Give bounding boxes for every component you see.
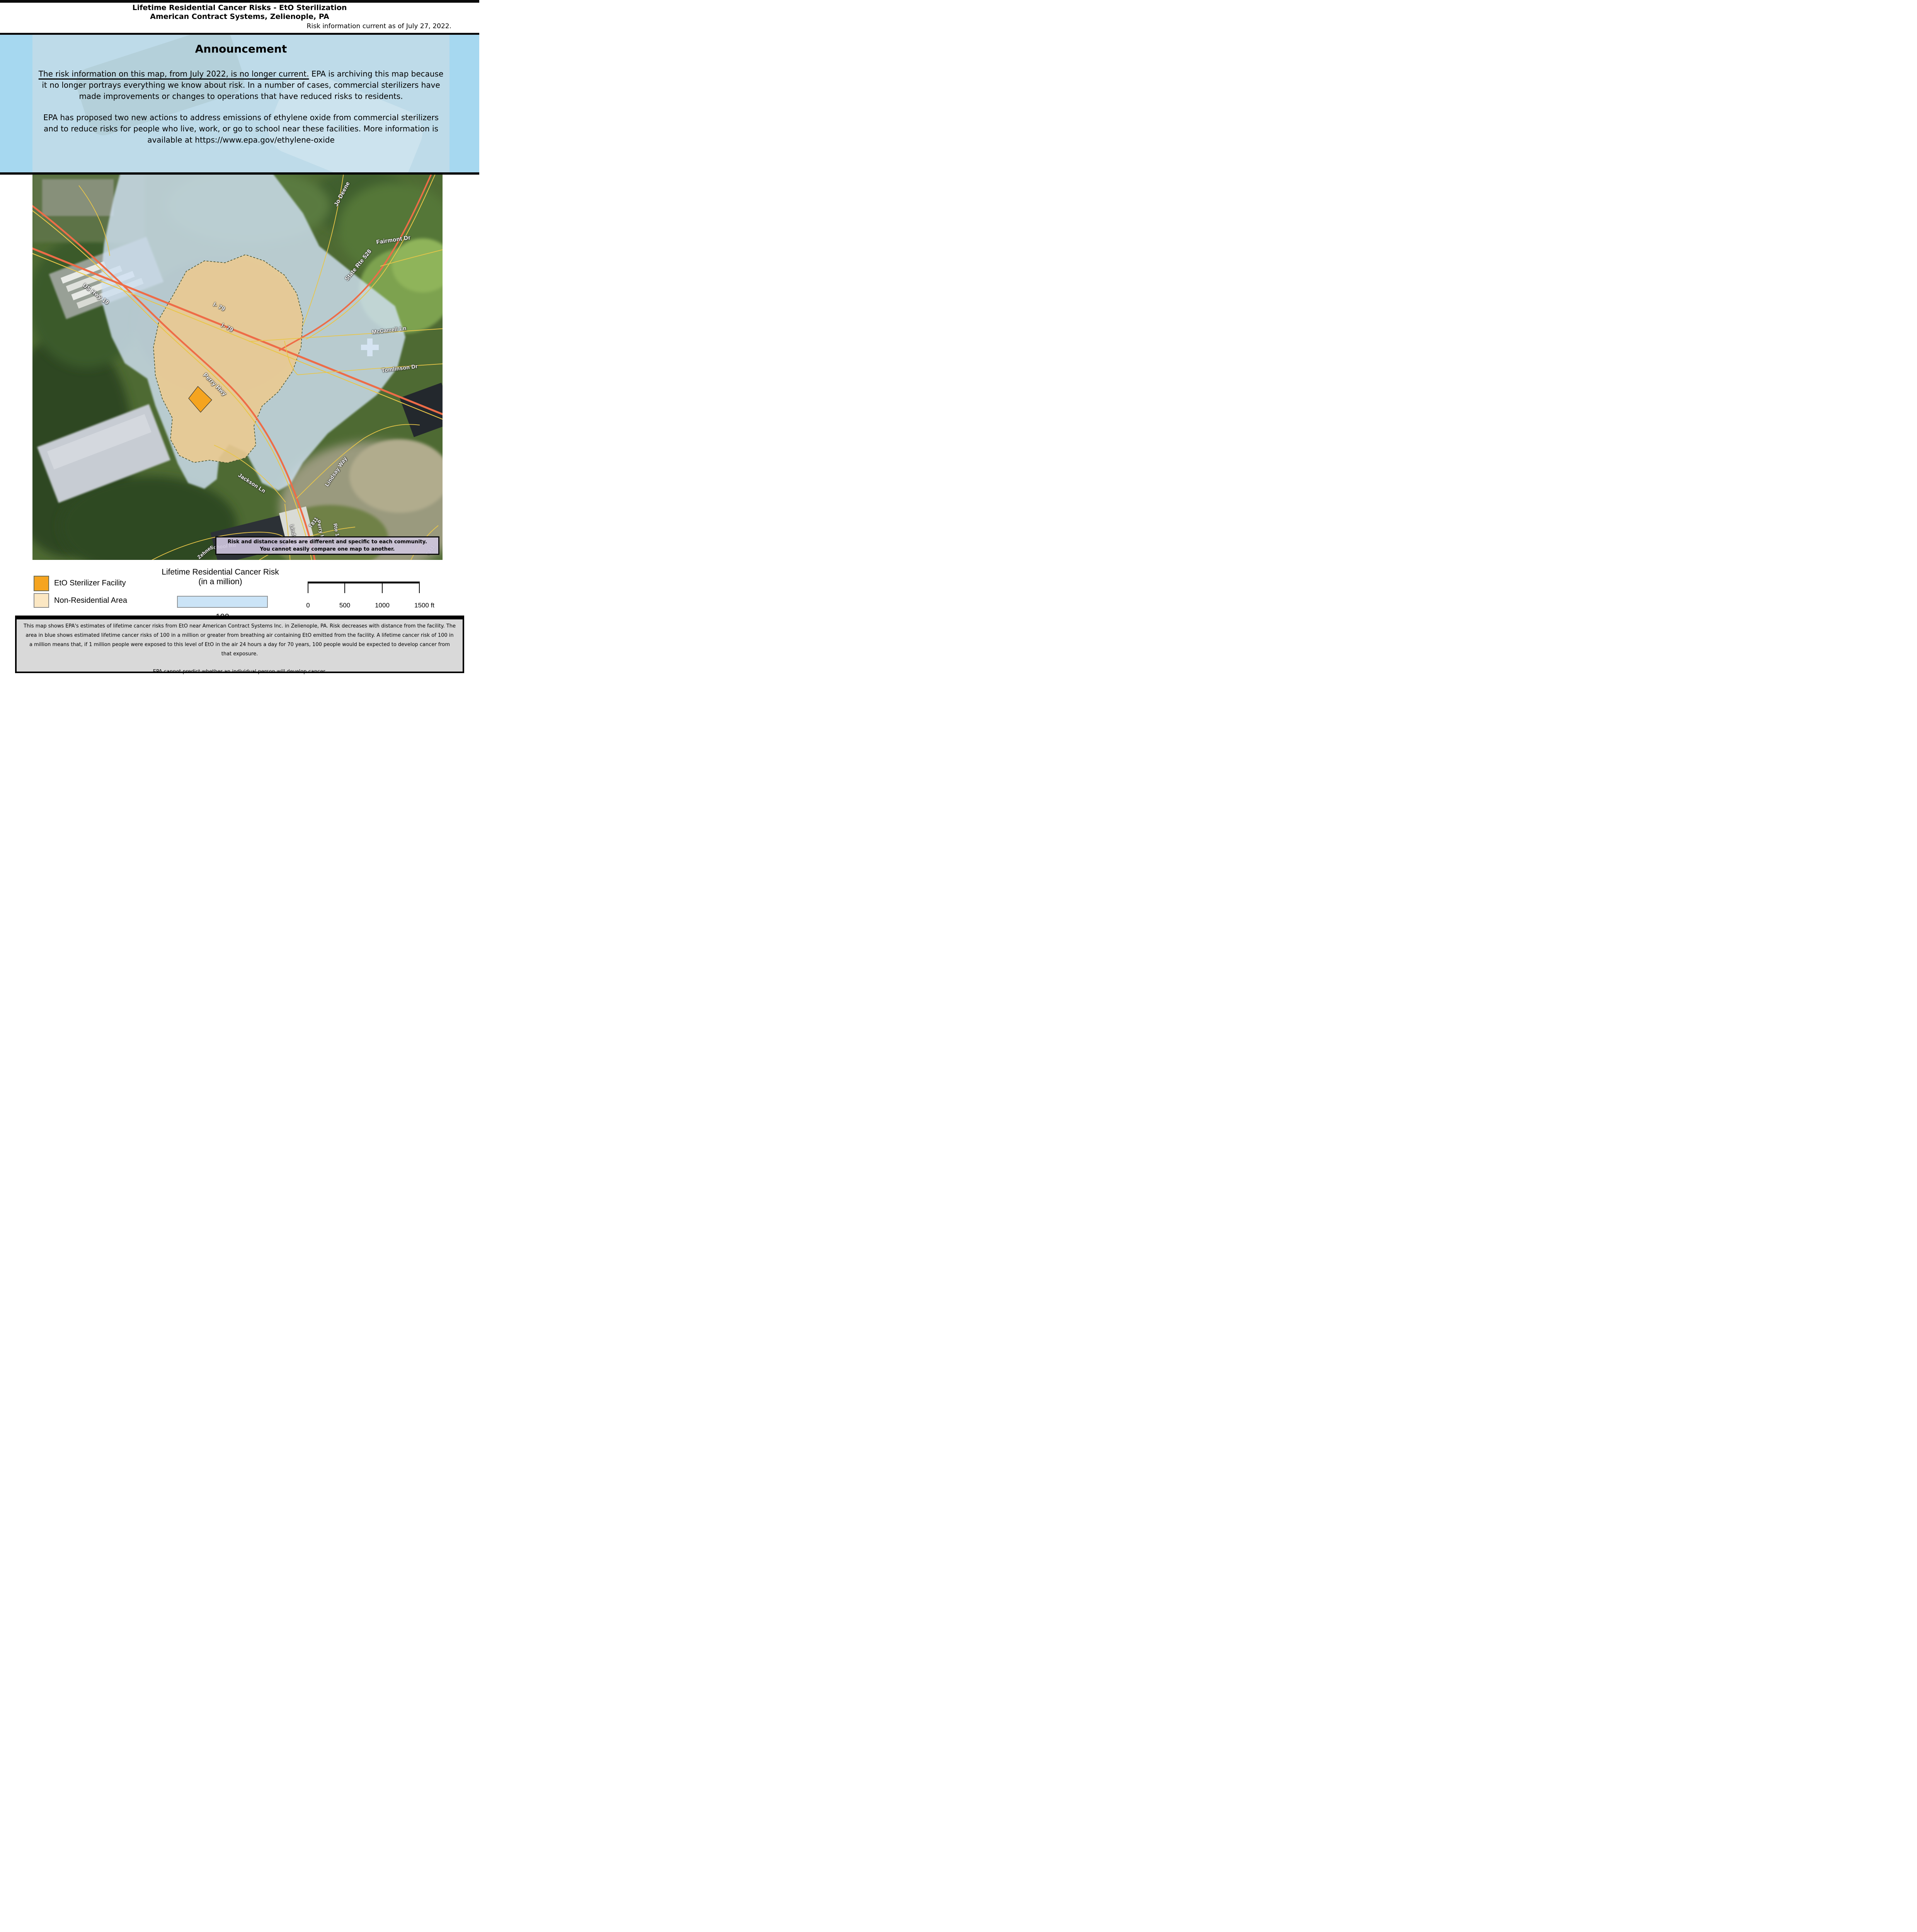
scale-tick-500: [344, 583, 345, 593]
disclaimer-paragraph: EPA cannot predict whether an individual…: [24, 667, 456, 677]
satellite-risk-map: Jo Deene Fairmont Dr State Rte 528 US Hw…: [32, 175, 443, 560]
scale-tick-1000: [382, 583, 383, 593]
page-title-line1: Lifetime Residential Cancer Risks - EtO …: [0, 3, 479, 12]
scale-tick-0: [308, 583, 308, 593]
risk-scale-title-line2: (in a million): [147, 577, 294, 587]
map-explanation-box: This map shows EPA's estimates of lifeti…: [15, 616, 464, 673]
scale-tick-1500: [419, 583, 420, 593]
scale-bar-line: [308, 582, 420, 583]
scale-label: 1500 ft: [414, 602, 434, 609]
nonresidential-legend-label: Non-Residential Area: [54, 596, 127, 605]
announcement-heading: Announcement: [37, 43, 445, 55]
top-divider-bar: [0, 0, 479, 3]
nonresidential-legend-swatch: [34, 593, 49, 608]
announcement-paragraph-1: The risk information on this map, from J…: [37, 68, 445, 102]
announcement-paragraph-2: EPA has proposed two new actions to addr…: [37, 112, 445, 146]
scale-label: 500: [339, 602, 350, 609]
scale-label: 0: [306, 602, 310, 609]
explanation-paragraph: This map shows EPA's estimates of lifeti…: [24, 622, 456, 659]
facility-legend-swatch: [34, 576, 49, 591]
announcement-content: Announcement The risk information on thi…: [32, 35, 449, 146]
scale-label: 1000: [375, 602, 390, 609]
notice-line1: Risk and distance scales are different a…: [216, 538, 438, 546]
announcement-band: Announcement The risk information on thi…: [0, 35, 479, 172]
distance-scale-bar: 0 500 1000 1500 ft: [308, 582, 427, 612]
announcement-box: Announcement The risk information on thi…: [32, 35, 449, 172]
scale-comparison-notice: Risk and distance scales are different a…: [215, 536, 439, 555]
epa-eto-risk-map-page: Lifetime Residential Cancer Risks - EtO …: [0, 0, 479, 678]
risk-100-swatch: [177, 596, 268, 608]
page-title-line2: American Contract Systems, Zelienople, P…: [0, 12, 479, 21]
risk-scale-title-line1: Lifetime Residential Cancer Risk: [147, 567, 294, 577]
facility-legend-label: EtO Sterilizer Facility: [54, 579, 126, 588]
notice-line2: You cannot easily compare one map to ano…: [216, 546, 438, 553]
announcement-underlined-sentence: The risk information on this map, from J…: [39, 69, 309, 78]
risk-date-note: Risk information current as of July 27, …: [307, 22, 451, 30]
